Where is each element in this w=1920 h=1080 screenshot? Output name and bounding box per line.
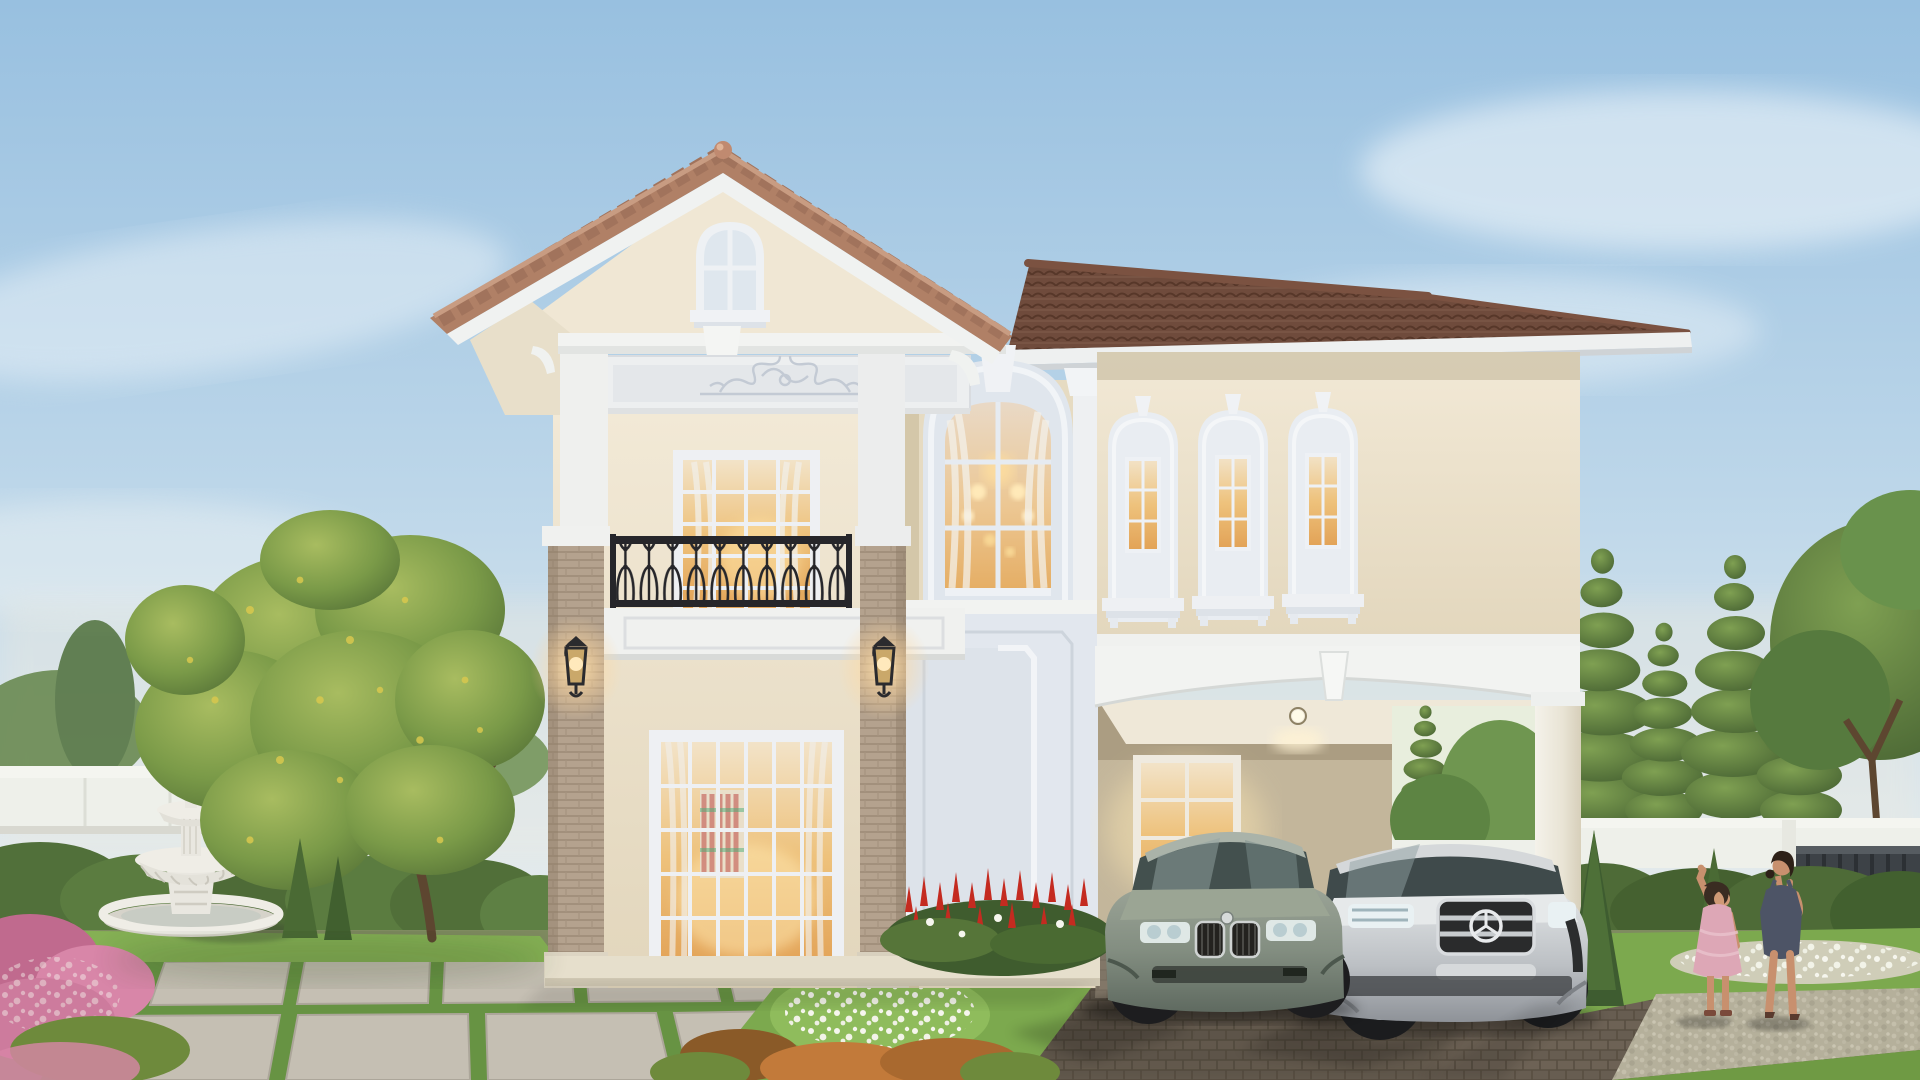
gable-arched-window (690, 222, 770, 328)
pilaster-right (858, 354, 905, 540)
beam-keystone (1320, 652, 1348, 700)
balcony-railing (610, 534, 852, 608)
woman-dress (1760, 885, 1802, 959)
right-facade (1097, 352, 1580, 656)
entablature (558, 326, 1006, 414)
wall-lantern-right (838, 616, 930, 720)
arched-window-1 (1102, 396, 1184, 628)
interior-artwork (700, 790, 744, 878)
arched-window-3 (1282, 392, 1364, 624)
roof-finial (714, 141, 732, 159)
architectural-render (0, 0, 1920, 1080)
suv-headlight (1348, 904, 1414, 928)
bmw-roundel (1221, 912, 1233, 924)
scene-canvas (0, 0, 1920, 1080)
arched-window-2 (1192, 394, 1274, 626)
ground-floor-window (649, 730, 844, 980)
pilaster-left (560, 354, 608, 540)
wall-lantern-left (530, 616, 622, 720)
